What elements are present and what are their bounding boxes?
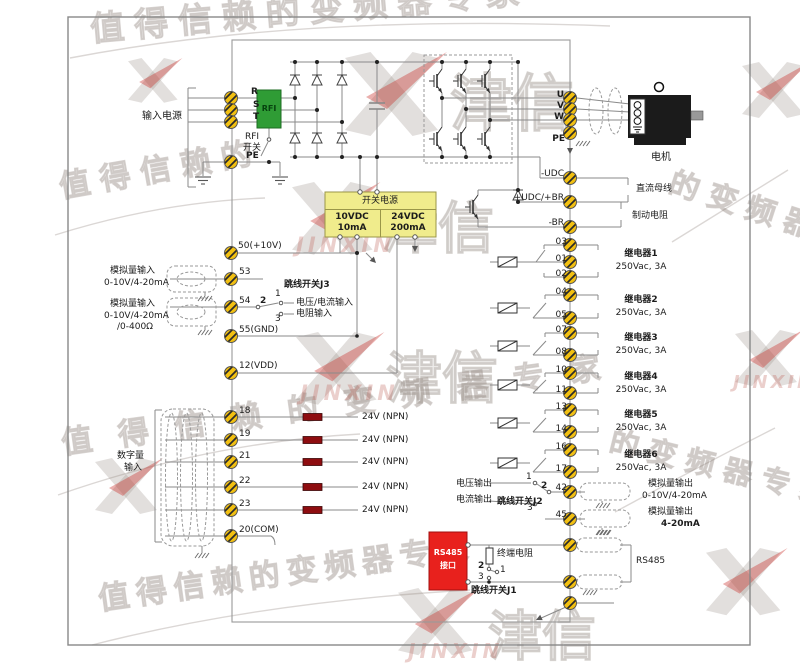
relay6-rating: 250Vac, 3A [616,463,667,473]
smps-10ma: 10mA [338,223,367,233]
termination-resistor-label: 终端电阻 [497,549,533,559]
relay4-rating: 250Vac, 3A [616,385,667,395]
rectifier-diode [290,133,300,143]
terminal-label-udc-neg: -UDC [541,169,564,179]
rs485-box-label: RS485 [434,548,463,557]
smps-200ma: 200mA [390,223,425,233]
terminal-label-07: 07 [556,325,567,335]
rectifier-diode [337,133,347,143]
shield-ground [596,503,610,508]
terminal-label-22: 22 [239,476,250,486]
analog-in1-label: 模拟量输入 [110,266,155,276]
analog-out1-label: 模拟量输出 [648,479,693,489]
jumper-j1-title: 跳线开关J1 [471,586,517,596]
jumper-j1-pos1: 1 [500,565,506,575]
rfi-switch-label: 开关 [243,143,261,153]
relay2-name: 继电器2 [624,295,657,305]
igbt [453,69,466,93]
terminal-label-10: 10 [556,365,567,375]
smps-24vdc: 24VDC [391,212,425,222]
shield-ground [576,141,590,146]
input-power-label: 输入电源 [142,111,182,123]
npn-label: 24V (NPN) [362,482,408,492]
jumper-j3-title: 跳线开关J3 [284,280,330,290]
terminal-label-42: 42 [556,483,567,493]
relay6-name: 继电器6 [624,450,657,460]
relay-coil [498,418,517,428]
motor-label: 电机 [651,152,671,164]
jumper-j2-pos1: 1 [526,472,532,482]
rectifier-diode [337,75,347,85]
analog-in1-range: 0-10V/4-20mA [104,278,169,288]
pe-arrow [567,148,573,154]
relay5-rating: 250Vac, 3A [616,423,667,433]
analog-in2-label: 模拟量输入 [110,299,155,309]
rectifier-diode [312,133,322,143]
j3-option-voltage: 电压/电流输入 [296,298,353,308]
relay-coil [498,458,517,468]
npn-label: 24V (NPN) [362,412,408,422]
terminal-label-br: -BR [549,218,564,228]
earth-ground [195,177,211,184]
igbt [429,127,442,151]
terminal-label-08: 08 [556,347,567,357]
motor [628,83,703,146]
digital-in-label: 输入 [124,463,142,473]
rs485-port-label: RS485 [636,556,665,566]
termination-resistor [486,548,493,564]
relay-coil [498,257,517,267]
terminal-label-t: T [253,112,259,122]
terminal-label-04: 04 [556,287,567,297]
analog-out2-label: 模拟量输出 [648,507,693,517]
analog-out1-range: 0-10V/4-20mA [642,491,707,501]
jumper-j3-pos1: 1 [275,289,281,299]
relay2-rating: 250Vac, 3A [616,308,667,318]
rfi-box-label: RFI [262,104,277,113]
j3-option-resistance: 电阻输入 [296,309,332,319]
relay5-name: 继电器5 [624,410,657,420]
jumper-j1-pos2: 2 [478,561,484,571]
terminal-label-16: 16 [556,442,567,452]
shield-ground [198,330,212,335]
terminal-label-50: 50(+10V) [238,241,282,251]
arrow [412,246,418,252]
npn-label: 24V (NPN) [362,435,408,445]
terminal-label-s: S [253,100,259,110]
shield-ground [583,590,597,595]
npn-label: 24V (NPN) [362,505,408,515]
npn-label: 24V (NPN) [362,457,408,467]
shield-ground [195,553,209,558]
terminal-label-18: 18 [239,406,250,416]
igbt [477,127,490,151]
relay-coil [498,341,517,351]
terminal-label-u: U [557,90,564,100]
terminal-label-55: 55(GND) [239,325,278,335]
terminal-label-53: 53 [239,267,250,277]
jumper-j2-pos2: 2 [541,481,547,491]
igbt [453,127,466,151]
relay1-name: 继电器1 [624,249,657,259]
terminal-label-21: 21 [239,451,250,461]
npn-resistors [303,414,322,514]
earth-ground [272,177,288,184]
terminal-label-02: 02 [556,269,567,279]
terminal-label-v: V [557,101,564,111]
smps-title: 开关电源 [362,196,398,206]
terminal-label-13: 13 [556,402,567,412]
analog-in2-range: 0-10V/4-20mA [104,311,169,321]
terminal-label-17: 17 [556,464,567,474]
jumper-j1-pos3: 3 [478,572,484,582]
terminal-label-01: 01 [556,254,567,264]
relay1-rating: 250Vac, 3A [616,262,667,272]
analog-out2-range: 4-20mA [661,519,700,529]
brake-resistor-label: 制动电阻 [632,211,668,221]
terminal-label-pe-out: PE [552,134,565,144]
terminal-label-03: 03 [556,237,567,247]
relay-contacts [490,245,598,472]
terminal-label-23: 23 [239,499,250,509]
smps-10vdc: 10VDC [335,212,369,222]
inverter-enclosure [232,40,570,622]
terminal-label-45: 45 [556,510,567,520]
terminal-label-14: 14 [556,424,567,434]
terminal-label-r: R [251,87,258,97]
j2-current-out: 电流输出 [456,495,492,505]
circuit-svg [0,0,800,665]
rectifier-diode [312,75,322,85]
dc-bus-label: 直流母线 [636,184,672,194]
rectifier-diode [290,75,300,85]
terminal-label-20com: 20(COM) [239,525,279,535]
relay3-name: 继电器3 [624,333,657,343]
rs485-box-label2: 接口 [440,561,456,570]
terminal-label-12: 12(VDD) [239,361,278,371]
igbt [477,69,490,93]
relay-coil [498,303,517,313]
digital-in-label: 数字量 [117,451,144,461]
relay-coil [498,380,517,390]
terminal-label-w: W [554,112,564,122]
jumper-j3-pos2: 2 [260,296,266,306]
terminal-label-05: 05 [556,310,567,320]
jumper-j3-pos3: 3 [275,314,281,324]
j2-voltage-out: 电压输出 [456,479,492,489]
terminal-label-udc-pos: +UDC/+BR [514,193,564,203]
analog-in2-range2: /0-400Ω [117,322,153,332]
relay3-rating: 250Vac, 3A [616,346,667,356]
brake-igbt [465,195,478,219]
terminal-label-54: 54 [239,296,250,306]
rfi-switch-label: RFI [245,132,259,142]
igbt [429,69,442,93]
relay4-name: 继电器4 [624,372,657,382]
jumper-j2-title: 跳线开关J2 [497,497,543,507]
terminal-label-19: 19 [239,429,250,439]
wiring-diagram-page: 值得信赖的变频器专家 值得信赖的 的变频器 值得信赖的变频器专家 值得信赖的变频… [0,0,800,665]
terminal-label-11: 11 [556,385,567,395]
